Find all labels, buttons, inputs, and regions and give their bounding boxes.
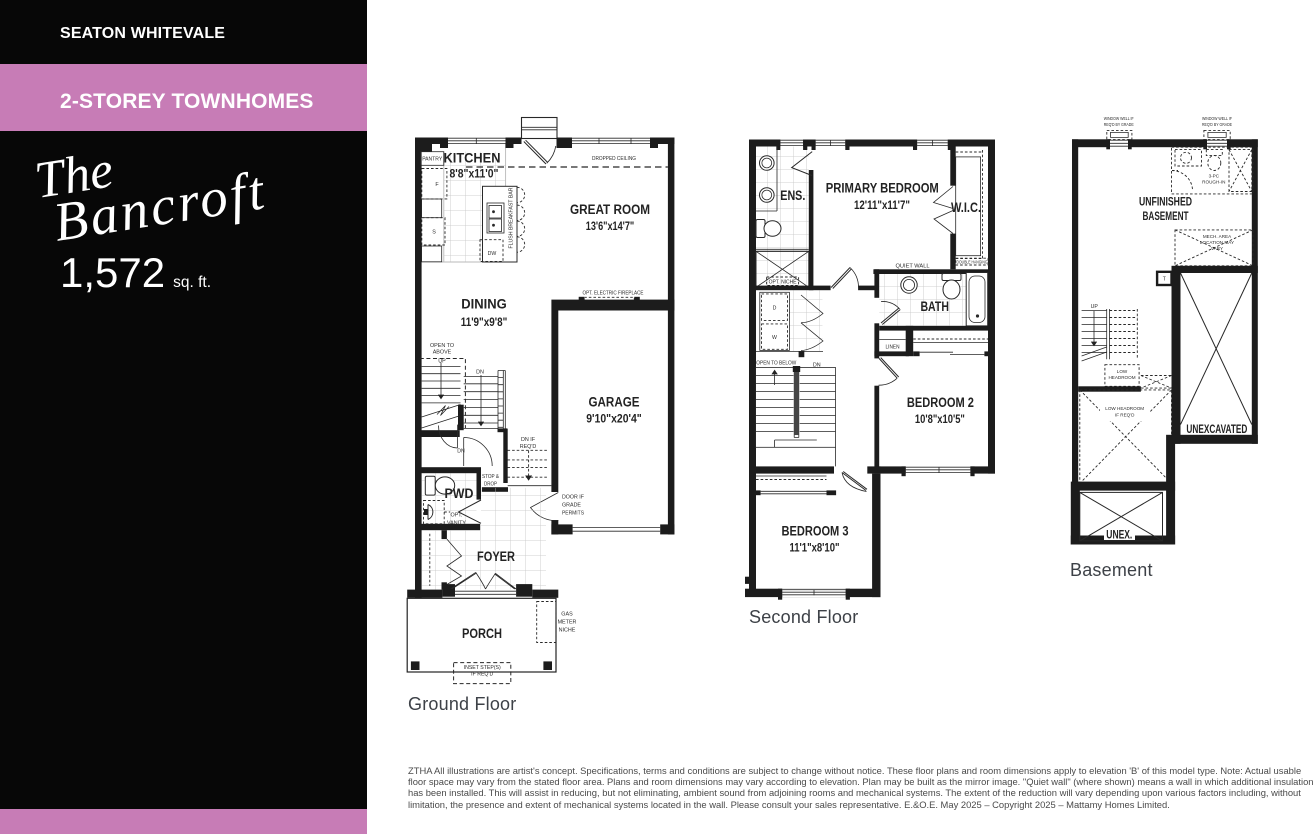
svg-text:DN: DN — [813, 363, 821, 369]
svg-text:OPEN TO: OPEN TO — [430, 343, 454, 349]
svg-text:DN: DN — [457, 449, 465, 455]
svg-text:BEDROOM 2: BEDROOM 2 — [907, 395, 974, 410]
svg-text:IF REQ'D: IF REQ'D — [1115, 413, 1135, 418]
svg-text:3-PC: 3-PC — [1209, 174, 1220, 179]
svg-text:F: F — [435, 182, 439, 188]
svg-text:METER: METER — [558, 620, 577, 626]
svg-text:8'8"x11'0": 8'8"x11'0" — [450, 167, 499, 181]
svg-text:11'9"x9'8": 11'9"x9'8" — [461, 315, 508, 329]
svg-text:BATH: BATH — [920, 299, 949, 314]
svg-text:DW: DW — [488, 251, 497, 257]
svg-text:FLUSH BREAKFAST BAR: FLUSH BREAKFAST BAR — [509, 187, 515, 248]
svg-text:LOW HEADROOM: LOW HEADROOM — [1105, 406, 1144, 411]
svg-text:LOCATION MAY: LOCATION MAY — [1200, 240, 1234, 245]
svg-text:UP: UP — [1091, 304, 1099, 310]
svg-text:UNEXCAVATED: UNEXCAVATED — [1186, 422, 1247, 436]
svg-text:10'8"x10'5": 10'8"x10'5" — [915, 412, 965, 426]
svg-text:LOW: LOW — [1117, 369, 1128, 374]
svg-text:PANTRY: PANTRY — [422, 157, 443, 163]
svg-text:PWD: PWD — [445, 486, 474, 501]
svg-text:BEDROOM 3: BEDROOM 3 — [782, 524, 849, 539]
svg-text:9'10"x20'4": 9'10"x20'4" — [586, 412, 642, 426]
svg-text:KITCHEN: KITCHEN — [444, 151, 501, 166]
svg-text:11'1"x8'10": 11'1"x8'10" — [790, 541, 840, 555]
svg-text:DROPPED CEILING: DROPPED CEILING — [592, 156, 636, 162]
svg-text:REQ'D: REQ'D — [520, 444, 537, 450]
svg-text:BASEMENT: BASEMENT — [1143, 209, 1189, 223]
svg-text:HEADROOM: HEADROOM — [1108, 375, 1135, 380]
svg-text:WINDOW WELL IF: WINDOW WELL IF — [1104, 116, 1134, 121]
svg-text:STOP &: STOP & — [482, 474, 499, 480]
svg-text:Second Floor: Second Floor — [749, 607, 858, 627]
svg-text:INSET STEP(S): INSET STEP(S) — [464, 665, 501, 671]
svg-text:VANITY: VANITY — [447, 521, 466, 527]
svg-text:MECH. AREA: MECH. AREA — [1203, 234, 1232, 239]
svg-text:DROP: DROP — [484, 482, 497, 488]
svg-text:VARY: VARY — [1211, 246, 1223, 251]
svg-text:GARAGE: GARAGE — [589, 395, 640, 410]
svg-text:OPEN TO BELOW: OPEN TO BELOW — [756, 361, 797, 367]
svg-text:GRADE: GRADE — [562, 503, 581, 509]
svg-text:IF REQ'D: IF REQ'D — [471, 671, 493, 677]
svg-text:ABOVE: ABOVE — [433, 350, 452, 356]
svg-text:WINDOW WELL IF: WINDOW WELL IF — [1202, 116, 1232, 121]
svg-text:FOYER: FOYER — [477, 549, 515, 564]
svg-text:OPT. NICHE: OPT. NICHE — [769, 280, 798, 286]
svg-text:LINEN: LINEN — [886, 345, 900, 351]
svg-text:REQ'D BY GRADE: REQ'D BY GRADE — [1104, 122, 1134, 127]
svg-text:DOOR IF: DOOR IF — [562, 495, 585, 501]
svg-text:OPT.: OPT. — [451, 513, 463, 519]
svg-text:PRIMARY BEDROOM: PRIMARY BEDROOM — [826, 181, 939, 196]
svg-text:QUIET WALL: QUIET WALL — [896, 264, 930, 270]
svg-text:PERMITS: PERMITS — [562, 511, 584, 517]
svg-text:ROUGH-IN: ROUGH-IN — [1202, 180, 1225, 185]
svg-text:UNFINISHED: UNFINISHED — [1139, 195, 1192, 209]
svg-text:GAS: GAS — [561, 612, 573, 618]
svg-text:Ground Floor: Ground Floor — [408, 694, 516, 714]
svg-text:Basement: Basement — [1070, 560, 1153, 580]
svg-text:DOUBLE HANGING: DOUBLE HANGING — [957, 260, 988, 265]
svg-text:12'11"x11'7": 12'11"x11'7" — [854, 198, 910, 212]
svg-text:OPT. ELECTRIC FIREPLACE: OPT. ELECTRIC FIREPLACE — [583, 291, 644, 297]
svg-text:UP: UP — [438, 359, 446, 365]
svg-text:PORCH: PORCH — [462, 626, 502, 641]
svg-text:GREAT ROOM: GREAT ROOM — [570, 202, 650, 217]
svg-text:DINING: DINING — [461, 297, 507, 312]
svg-text:ENS.: ENS. — [780, 188, 805, 203]
svg-text:DN: DN — [476, 370, 484, 376]
svg-text:REQ'D BY GRADE: REQ'D BY GRADE — [1202, 122, 1232, 127]
svg-text:NICHE: NICHE — [559, 628, 576, 634]
svg-text:13'6"x14'7": 13'6"x14'7" — [586, 219, 635, 233]
svg-text:UNEX.: UNEX. — [1106, 528, 1132, 542]
svg-text:DN IF: DN IF — [521, 437, 536, 443]
svg-text:W: W — [772, 335, 777, 341]
svg-text:D: D — [773, 306, 777, 312]
svg-text:S: S — [432, 230, 436, 236]
